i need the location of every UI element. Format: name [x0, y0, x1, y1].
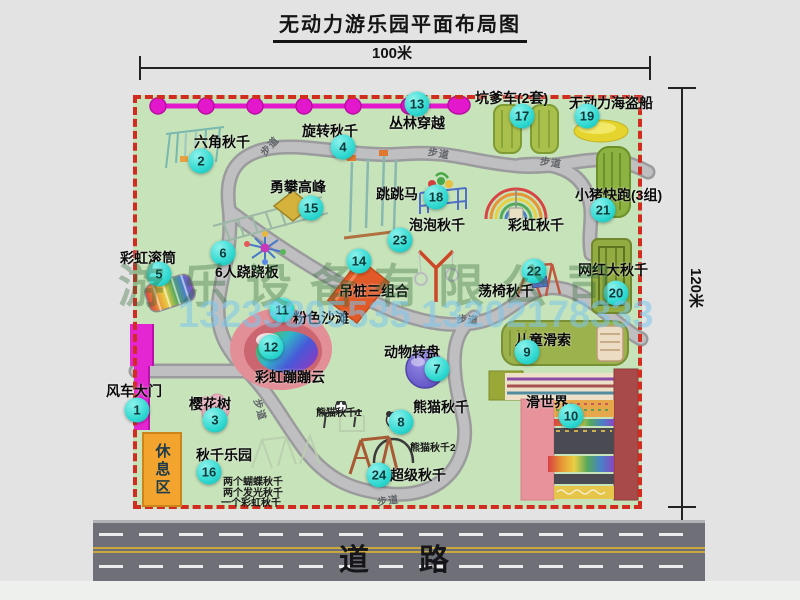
attraction-label-8: 熊猫秋千 — [413, 397, 469, 417]
watermark-phone: 13233805535 13202178333 — [178, 294, 654, 337]
attraction-badge-10: 10 — [559, 404, 584, 429]
attraction-badge-16: 16 — [197, 460, 222, 485]
attraction-sublabel-8: 熊猫秋千2 — [410, 439, 456, 454]
attraction-badge-12: 12 — [259, 335, 284, 360]
attraction-label-23: 泡泡秋千 — [409, 215, 465, 235]
attraction-badge-24: 24 — [367, 463, 392, 488]
attraction-badge-3: 3 — [203, 408, 228, 433]
walkway-label: 步道 — [427, 143, 451, 162]
attraction-badge-2: 2 — [189, 149, 214, 174]
walkway-label: 步道 — [251, 397, 271, 422]
attraction-badge-13: 13 — [405, 92, 430, 117]
attraction-badge-18: 18 — [424, 185, 449, 210]
attraction-badge-23: 23 — [388, 228, 413, 253]
attraction-badge-8: 8 — [389, 410, 414, 435]
attraction-badge-21: 21 — [591, 198, 616, 223]
attraction-badge-1: 1 — [125, 398, 150, 423]
walkway-label: 步道 — [539, 153, 563, 171]
attraction-sublabel-16: 一个彩虹秋千 — [221, 494, 281, 509]
attraction-sublabel-8: 熊猫秋千1 — [316, 404, 362, 419]
attraction-label-21: 小猪快跑(3组) — [575, 185, 662, 205]
attraction-badge-19: 19 — [575, 104, 600, 129]
walkway-label: 步道 — [376, 491, 400, 509]
attraction-label-12: 彩虹蹦蹦云 — [255, 367, 325, 387]
park-plan-image: 无动力游乐园平面布局图 100米 120米 — [0, 0, 800, 600]
attraction-label-24: 超级秋千 — [390, 465, 446, 485]
attraction-badge-17: 17 — [510, 104, 535, 129]
attraction-badge-15: 15 — [299, 196, 324, 221]
attraction-badge-9: 9 — [515, 340, 540, 365]
attraction-label-extra: 彩虹秋千 — [508, 215, 564, 235]
attraction-label-18: 跳跳马 — [376, 184, 418, 204]
walkway-label: 步道 — [256, 132, 282, 158]
attraction-label-17: 坑爹车(2套) — [475, 88, 548, 108]
attraction-label-15: 勇攀高峰 — [270, 177, 326, 197]
attraction-badge-4: 4 — [331, 135, 356, 160]
attraction-badge-7: 7 — [425, 357, 450, 382]
